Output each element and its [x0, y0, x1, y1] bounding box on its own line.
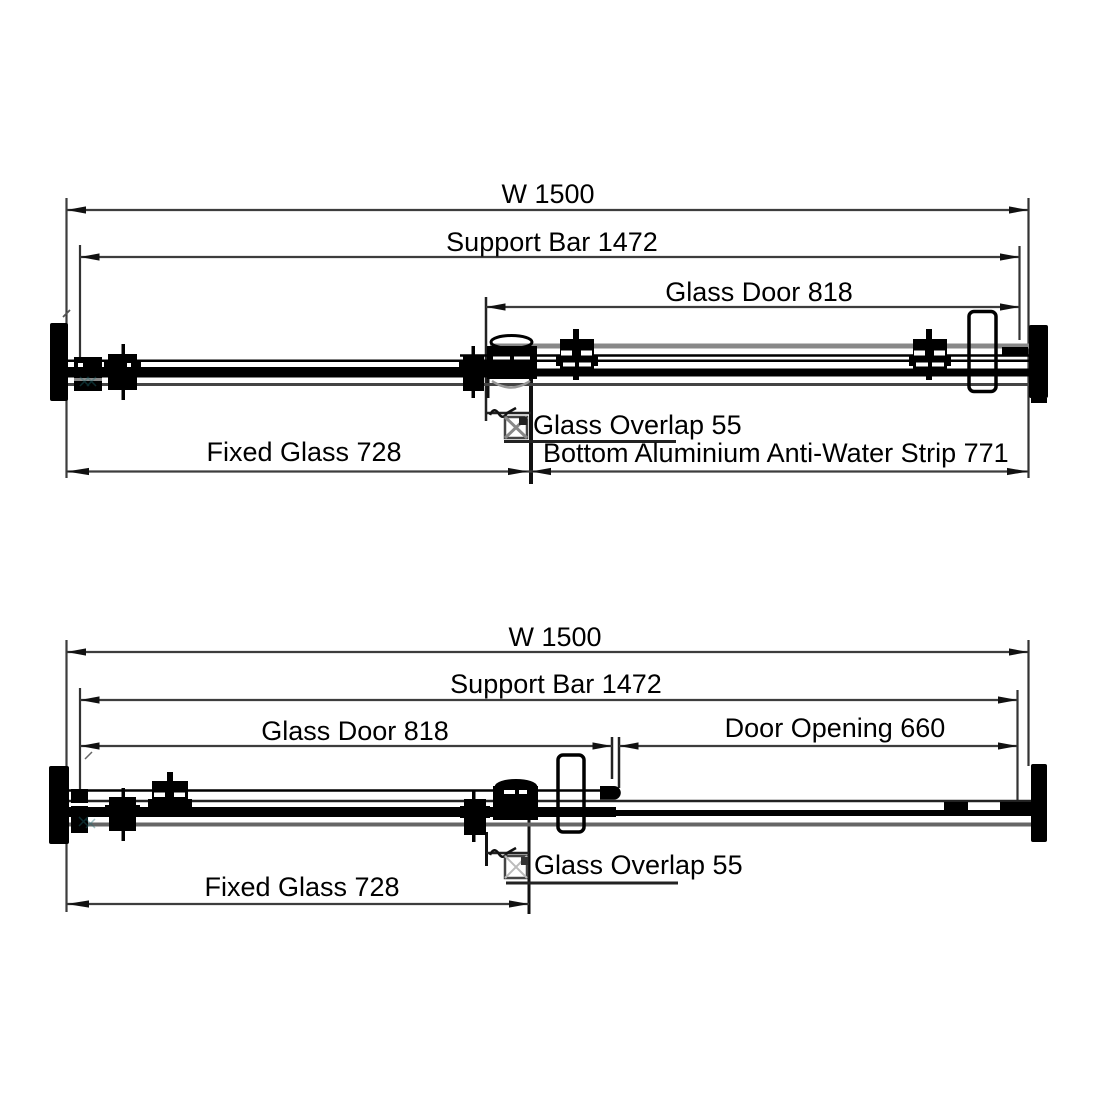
svg-text:Bottom Aluminium Anti-Water St: Bottom Aluminium Anti-Water Strip 771 [543, 438, 1009, 468]
svg-text:Glass Overlap 55: Glass Overlap 55 [534, 850, 743, 880]
svg-text:Door Opening 660: Door Opening 660 [725, 713, 946, 743]
svg-text:Support Bar 1472: Support Bar 1472 [450, 669, 662, 699]
svg-text:Glass Door 818: Glass Door 818 [261, 716, 449, 746]
svg-text:Fixed Glass 728: Fixed Glass 728 [204, 872, 399, 902]
svg-text:W 1500: W 1500 [501, 179, 594, 209]
svg-text:Glass Overlap 55: Glass Overlap 55 [533, 410, 742, 440]
svg-text:Fixed Glass 728: Fixed Glass 728 [206, 437, 401, 467]
svg-text:Glass Door 818: Glass Door 818 [665, 277, 853, 307]
svg-text:W 1500: W 1500 [508, 622, 601, 652]
svg-text:Support Bar 1472: Support Bar 1472 [446, 227, 658, 257]
